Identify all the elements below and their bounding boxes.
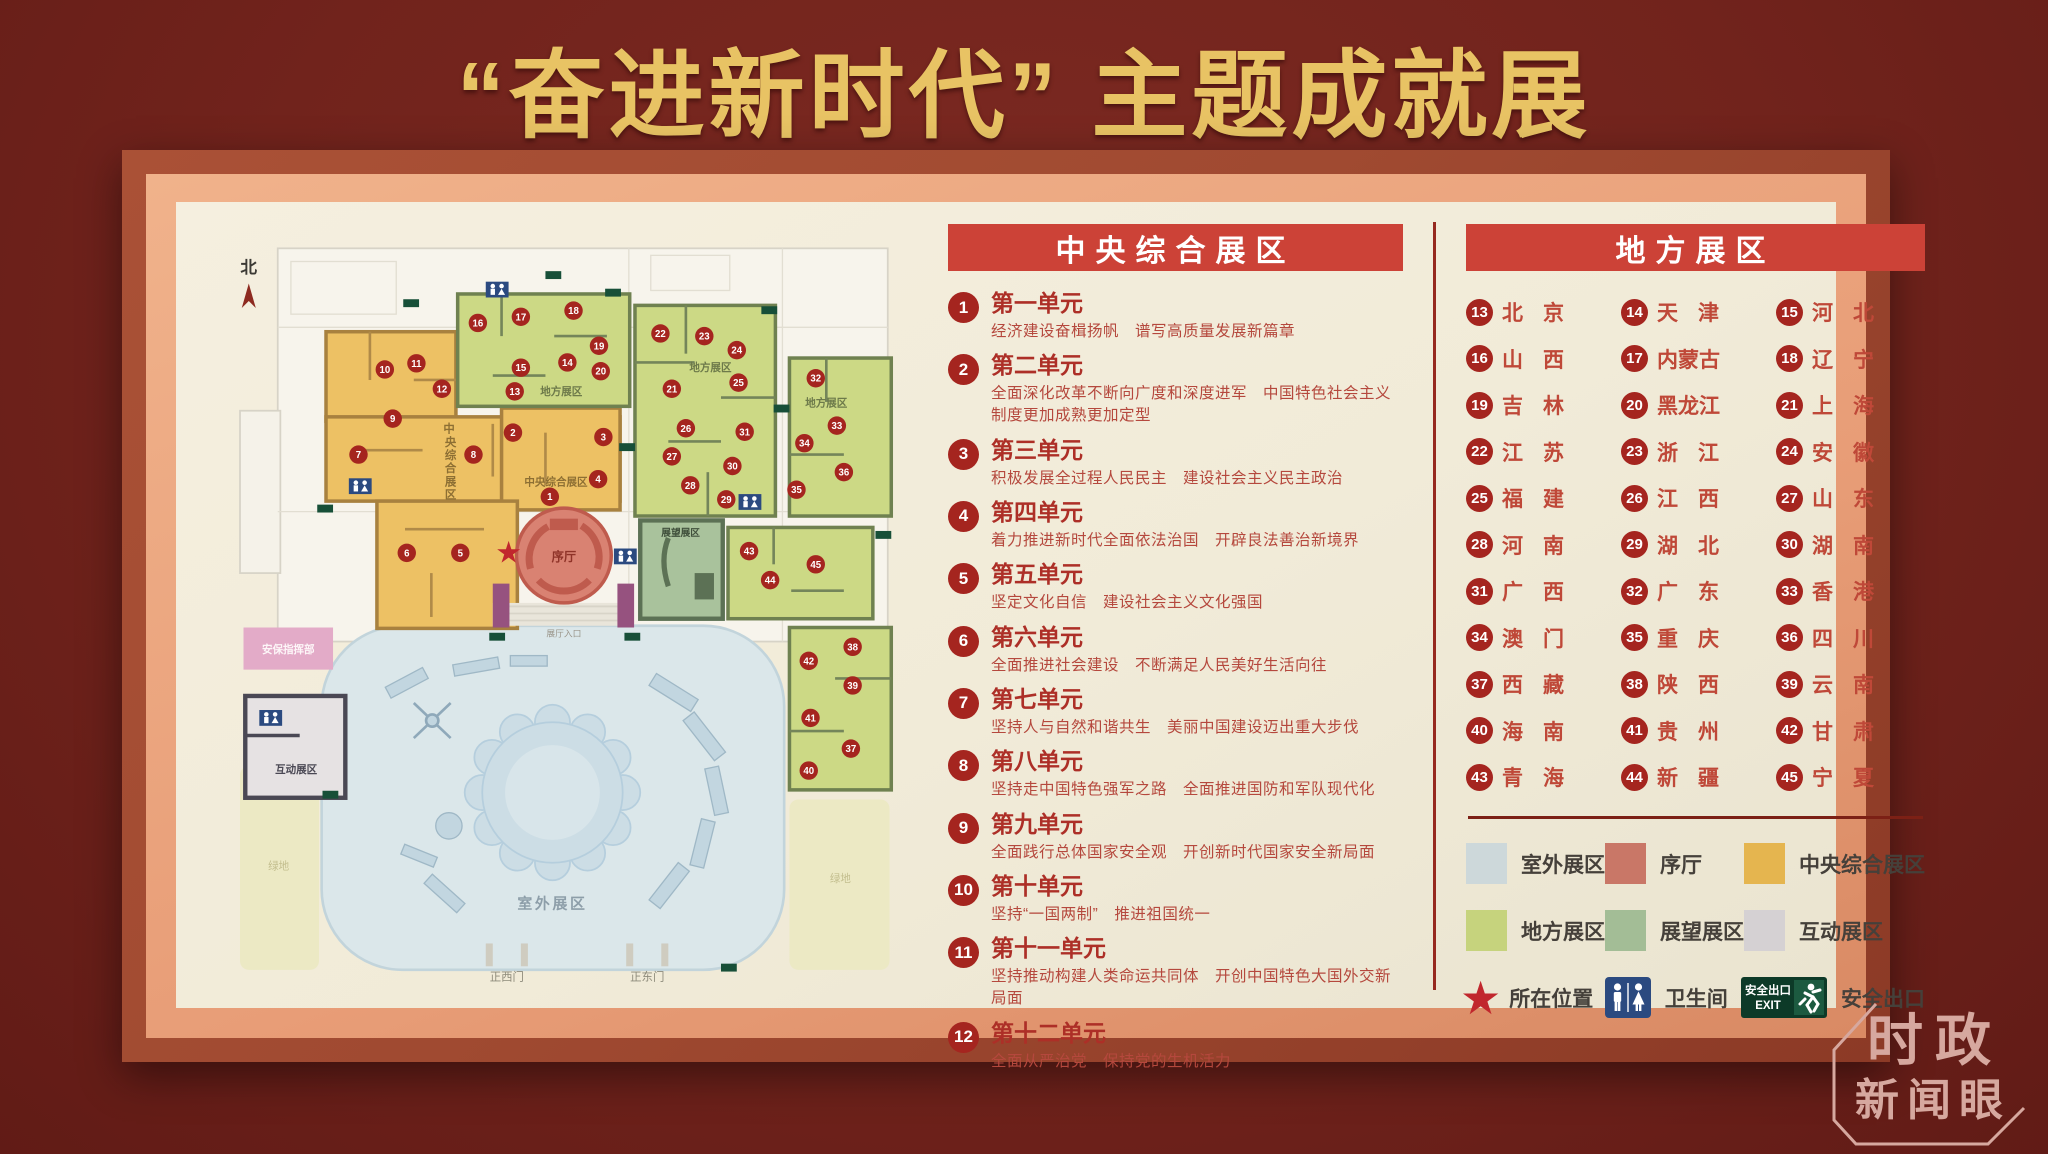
unit-description: 积极发展全过程人民民主 建设社会主义民主政治 xyxy=(991,466,1343,488)
province-number-badge: 29 xyxy=(1621,531,1648,558)
province-name: 重庆 xyxy=(1657,623,1739,653)
unit-description: 全面从严治党 保持党的生机活力 xyxy=(991,1049,1231,1071)
province-name: 甘肃 xyxy=(1812,716,1894,746)
unit-title: 第三单元 xyxy=(991,438,1343,462)
province-name: 浙江 xyxy=(1657,437,1739,467)
svg-text:EXIT: EXIT xyxy=(1755,1000,1781,1012)
unit-description: 着力推进新时代全面依法治国 开辟良法善治新境界 xyxy=(991,528,1359,550)
svg-text:22: 22 xyxy=(655,329,666,340)
province-name: 辽宁 xyxy=(1812,344,1894,374)
watermark-logo: 时政 新闻眼 xyxy=(1816,988,2042,1152)
province-name: 内蒙古 xyxy=(1657,344,1720,374)
north-indicator: 北 xyxy=(240,258,257,308)
unit-number-badge: 4 xyxy=(948,501,979,532)
unit-item: 12 第十二单元 全面从严治党 保持党的生机活力 xyxy=(948,1021,1403,1071)
province-number-badge: 17 xyxy=(1621,345,1648,372)
svg-text:北: 北 xyxy=(240,258,257,277)
svg-text:19: 19 xyxy=(594,341,605,352)
legend-zone-label: 室外展区 xyxy=(1521,849,1605,879)
legend-color-swatch xyxy=(1605,843,1646,884)
province-name: 陕西 xyxy=(1657,669,1739,699)
unit-item: 10 第十单元 坚持“一国两制” 推进祖国统一 xyxy=(948,874,1403,924)
province-item: 45 宁夏 xyxy=(1776,762,1925,792)
svg-text:5: 5 xyxy=(458,548,464,559)
svg-text:安全出口: 安全出口 xyxy=(1745,983,1791,997)
svg-text:安保指挥部: 安保指挥部 xyxy=(262,643,315,656)
svg-text:37: 37 xyxy=(846,744,857,755)
gate-east-label: 正东门 xyxy=(630,969,664,983)
province-item: 43 青海 xyxy=(1466,762,1615,792)
unit-number-badge: 8 xyxy=(948,750,979,781)
board-panel: 北 绿地 绿地 xyxy=(176,202,1836,1008)
province-item: 38 陕西 xyxy=(1621,669,1770,699)
unit-title: 第一单元 xyxy=(991,291,1295,315)
unit-title: 第十单元 xyxy=(991,874,1210,898)
svg-text:15: 15 xyxy=(516,363,527,374)
province-number-badge: 43 xyxy=(1466,764,1493,791)
province-name: 江苏 xyxy=(1502,437,1584,467)
svg-text:43: 43 xyxy=(744,547,755,558)
province-name: 青海 xyxy=(1502,762,1584,792)
province-item: 20 黑龙江 xyxy=(1621,390,1770,420)
unit-number-badge: 1 xyxy=(948,292,979,323)
unit-title: 第六单元 xyxy=(991,625,1327,649)
unit-number-badge: 7 xyxy=(948,688,979,719)
province-item: 19 吉林 xyxy=(1466,390,1615,420)
province-item: 30 湖南 xyxy=(1776,530,1925,560)
svg-text:地方展区: 地方展区 xyxy=(540,385,583,398)
province-item: 42 甘肃 xyxy=(1776,716,1925,746)
svg-text:绿地: 绿地 xyxy=(268,860,290,873)
province-number-badge: 20 xyxy=(1621,392,1648,419)
province-number-badge: 16 xyxy=(1466,345,1493,372)
svg-text:地方展区: 地方展区 xyxy=(689,361,732,374)
province-name: 黑龙江 xyxy=(1657,390,1720,420)
current-location-star-icon: ★ xyxy=(495,537,522,570)
floor-plan-map: 北 绿地 绿地 xyxy=(192,222,934,990)
svg-text:20: 20 xyxy=(595,367,606,378)
unit-title: 第四单元 xyxy=(991,500,1359,524)
board-inner-frame: 北 绿地 绿地 xyxy=(146,174,1866,1038)
province-number-badge: 42 xyxy=(1776,717,1803,744)
province-number-badge: 33 xyxy=(1776,578,1803,605)
legend-location: ★ 所在位置 xyxy=(1466,977,1605,1018)
unit-title: 第九单元 xyxy=(991,812,1375,836)
svg-text:39: 39 xyxy=(847,681,858,692)
province-item: 21 上海 xyxy=(1776,390,1925,420)
svg-text:展望展区: 展望展区 xyxy=(661,527,700,539)
province-item: 28 河南 xyxy=(1466,530,1615,560)
north-arrow-icon xyxy=(242,283,256,308)
province-item: 40 海南 xyxy=(1466,716,1615,746)
province-item: 37 西藏 xyxy=(1466,669,1615,699)
province-name: 吉林 xyxy=(1502,390,1584,420)
unit-number-badge: 9 xyxy=(948,813,979,844)
unit-description: 坚持“一国两制” 推进祖国统一 xyxy=(991,902,1210,924)
unit-item: 8 第八单元 坚持走中国特色强军之路 全面推进国防和军队现代化 xyxy=(948,749,1403,799)
unit-number-badge: 3 xyxy=(948,439,979,470)
province-name: 江西 xyxy=(1657,483,1739,513)
province-number-badge: 35 xyxy=(1621,624,1648,651)
svg-text:40: 40 xyxy=(803,766,814,777)
province-number-badge: 41 xyxy=(1621,717,1648,744)
unit-list: 1 第一单元 经济建设奋楫扬帆 谱写高质量发展新篇章 2 第二单元 全面深化改革… xyxy=(948,291,1403,1071)
unit-description: 经济建设奋楫扬帆 谱写高质量发展新篇章 xyxy=(991,319,1295,341)
gate-west-label: 正西门 xyxy=(490,969,524,983)
province-number-badge: 13 xyxy=(1466,299,1493,326)
svg-text:11: 11 xyxy=(411,359,422,370)
province-name: 河北 xyxy=(1812,297,1894,327)
legend-color-swatch xyxy=(1744,843,1785,884)
province-item: 17 内蒙古 xyxy=(1621,344,1770,374)
province-number-badge: 15 xyxy=(1776,299,1803,326)
svg-text:1: 1 xyxy=(547,492,553,503)
svg-text:室外展区: 室外展区 xyxy=(517,894,587,912)
svg-text:35: 35 xyxy=(791,485,802,496)
legend-zone-item: 中央综合展区 xyxy=(1744,843,1925,884)
outdoor-zone: 室外展区 正西门 正东门 xyxy=(322,626,785,984)
province-item: 36 四川 xyxy=(1776,623,1925,653)
legend-zone-item: 地方展区 xyxy=(1466,910,1605,951)
legend-divider xyxy=(1468,816,1923,819)
province-number-badge: 39 xyxy=(1776,671,1803,698)
svg-text:33: 33 xyxy=(831,421,842,432)
province-item: 18 辽宁 xyxy=(1776,344,1925,374)
security-hq: 安保指挥部 xyxy=(244,628,334,670)
logo-line2: 新闻眼 xyxy=(1816,1064,2042,1128)
province-name: 香港 xyxy=(1812,576,1894,606)
svg-text:地方展区: 地方展区 xyxy=(805,396,848,409)
hall-entrance-label: 展厅入口 xyxy=(546,628,581,638)
svg-text:3: 3 xyxy=(601,433,607,444)
local-zone-header: 地方展区 xyxy=(1466,224,1925,271)
province-item: 25 福建 xyxy=(1466,483,1615,513)
svg-text:2: 2 xyxy=(510,428,515,439)
province-name: 云南 xyxy=(1812,669,1894,699)
svg-text:30: 30 xyxy=(727,462,738,473)
svg-text:7: 7 xyxy=(356,450,361,461)
province-item: 32 广东 xyxy=(1621,576,1770,606)
unit-number-badge: 11 xyxy=(948,937,979,968)
province-name: 贵州 xyxy=(1657,716,1739,746)
svg-text:10: 10 xyxy=(379,365,390,376)
province-number-badge: 36 xyxy=(1776,624,1803,651)
svg-text:25: 25 xyxy=(733,378,744,389)
unit-number-badge: 10 xyxy=(948,875,979,906)
province-item: 34 澳门 xyxy=(1466,623,1615,653)
svg-text:绿地: 绿地 xyxy=(830,872,852,885)
svg-text:序厅: 序厅 xyxy=(552,549,577,564)
province-number-badge: 30 xyxy=(1776,531,1803,558)
province-name: 福建 xyxy=(1502,483,1584,513)
central-zone-column: 中央综合展区 1 第一单元 经济建设奋楫扬帆 谱写高质量发展新篇章 2 第二单元… xyxy=(944,222,1436,990)
svg-text:12: 12 xyxy=(437,384,448,395)
unit-item: 1 第一单元 经济建设奋楫扬帆 谱写高质量发展新篇章 xyxy=(948,291,1403,341)
province-number-badge: 14 xyxy=(1621,299,1648,326)
svg-text:29: 29 xyxy=(721,495,732,506)
province-item: 29 湖北 xyxy=(1621,530,1770,560)
exit-sign-icon: 安全出口 EXIT xyxy=(1741,977,1827,1018)
legend-zone-item: 展望展区 xyxy=(1605,910,1744,951)
legend-zone-label: 互动展区 xyxy=(1799,916,1883,946)
prospect-zone: 展望展区 xyxy=(640,520,723,618)
province-item: 35 重庆 xyxy=(1621,623,1770,653)
unit-number-badge: 6 xyxy=(948,626,979,657)
exhibition-board-photo: “奋进新时代” 主题成就展 xyxy=(0,0,2048,1154)
province-item: 23 浙江 xyxy=(1621,437,1770,467)
legend-zone-label: 序厅 xyxy=(1660,849,1702,879)
unit-number-badge: 5 xyxy=(948,563,979,594)
svg-text:14: 14 xyxy=(562,358,573,369)
svg-text:42: 42 xyxy=(803,656,814,667)
svg-text:4: 4 xyxy=(595,475,601,486)
legend-zone-item: 序厅 xyxy=(1605,843,1744,884)
province-name: 河南 xyxy=(1502,530,1584,560)
province-item: 41 贵州 xyxy=(1621,716,1770,746)
province-name: 北京 xyxy=(1502,297,1584,327)
legend-zone-label: 展望展区 xyxy=(1660,916,1744,946)
province-name: 广东 xyxy=(1657,576,1739,606)
central-main-label: 中央综合展区 xyxy=(524,475,588,488)
province-number-badge: 22 xyxy=(1466,438,1493,465)
unit-description: 全面深化改革不断向广度和深度进军 中国特色社会主义制度更加成熟更加定型 xyxy=(991,381,1403,425)
province-number-badge: 21 xyxy=(1776,392,1803,419)
province-name: 山东 xyxy=(1812,483,1894,513)
svg-text:34: 34 xyxy=(799,439,810,450)
province-item: 24 安徽 xyxy=(1776,437,1925,467)
unit-item: 6 第六单元 全面推进社会建设 不断满足人民美好生活向往 xyxy=(948,625,1403,675)
unit-item: 7 第七单元 坚持人与自然和谐共生 美丽中国建设迈出重大步伐 xyxy=(948,687,1403,737)
province-number-badge: 27 xyxy=(1776,485,1803,512)
unit-title: 第七单元 xyxy=(991,687,1359,711)
unit-title: 第十二单元 xyxy=(991,1021,1231,1045)
unit-description: 全面推进社会建设 不断满足人民美好生活向往 xyxy=(991,653,1327,675)
province-name: 山西 xyxy=(1502,344,1584,374)
province-item: 15 河北 xyxy=(1776,297,1925,327)
province-name: 海南 xyxy=(1502,716,1584,746)
legend-color-swatch xyxy=(1605,910,1646,951)
province-number-badge: 25 xyxy=(1466,485,1493,512)
province-item: 44 新疆 xyxy=(1621,762,1770,792)
svg-text:9: 9 xyxy=(390,414,395,425)
province-number-badge: 23 xyxy=(1621,438,1648,465)
province-number-badge: 37 xyxy=(1466,671,1493,698)
svg-text:44: 44 xyxy=(765,576,776,587)
province-item: 39 云南 xyxy=(1776,669,1925,699)
province-name: 广西 xyxy=(1502,576,1584,606)
svg-text:8: 8 xyxy=(471,450,477,461)
unit-description: 坚定文化自信 建设社会主义文化强国 xyxy=(991,590,1263,612)
svg-text:38: 38 xyxy=(847,642,858,653)
province-name: 天津 xyxy=(1657,297,1739,327)
central-left-label: 中 央综合展区 xyxy=(443,422,458,502)
svg-text:6: 6 xyxy=(404,548,410,559)
legend-color-swatch xyxy=(1466,910,1507,951)
province-item: 26 江西 xyxy=(1621,483,1770,513)
province-number-badge: 24 xyxy=(1776,438,1803,465)
province-list: 13 北京 14 天津 15 河北 16 山西 17 内蒙古 18 辽宁 19 … xyxy=(1466,297,1925,792)
province-item: 14 天津 xyxy=(1621,297,1770,327)
unit-item: 4 第四单元 着力推进新时代全面依法治国 开辟良法善治新境界 xyxy=(948,500,1403,550)
unit-item: 3 第三单元 积极发展全过程人民民主 建设社会主义民主政治 xyxy=(948,438,1403,488)
province-number-badge: 28 xyxy=(1466,531,1493,558)
province-item: 33 香港 xyxy=(1776,576,1925,606)
province-name: 上海 xyxy=(1812,390,1894,420)
unit-number-badge: 2 xyxy=(948,354,979,385)
unit-title: 第八单元 xyxy=(991,749,1375,773)
svg-text:36: 36 xyxy=(839,468,850,479)
svg-text:17: 17 xyxy=(516,312,527,323)
svg-text:28: 28 xyxy=(685,481,696,492)
province-item: 16 山西 xyxy=(1466,344,1615,374)
province-item: 13 北京 xyxy=(1466,297,1615,327)
province-number-badge: 19 xyxy=(1466,392,1493,419)
province-item: 31 广西 xyxy=(1466,576,1615,606)
province-number-badge: 31 xyxy=(1466,578,1493,605)
unit-title: 第十一单元 xyxy=(991,936,1403,960)
svg-text:26: 26 xyxy=(681,424,692,435)
province-name: 湖南 xyxy=(1812,530,1894,560)
svg-text:32: 32 xyxy=(810,374,821,385)
local-zone-d xyxy=(728,527,873,618)
legend-zone-label: 地方展区 xyxy=(1521,916,1605,946)
legend-color-swatch xyxy=(1466,843,1507,884)
svg-text:16: 16 xyxy=(472,318,483,329)
unit-description: 坚持人与自然和谐共生 美丽中国建设迈出重大步伐 xyxy=(991,715,1359,737)
legend-restroom: 卫生间 xyxy=(1605,977,1741,1018)
central-zone-header: 中央综合展区 xyxy=(948,224,1403,271)
unit-description: 全面践行总体国家安全观 开创新时代国家安全新局面 xyxy=(991,840,1375,862)
local-zone-column: 地方展区 13 北京 14 天津 15 河北 16 山西 17 内蒙古 18 辽… xyxy=(1466,222,1925,990)
province-number-badge: 40 xyxy=(1466,717,1493,744)
province-number-badge: 32 xyxy=(1621,578,1648,605)
province-number-badge: 44 xyxy=(1621,764,1648,791)
unit-item: 9 第九单元 全面践行总体国家安全观 开创新时代国家安全新局面 xyxy=(948,812,1403,862)
unit-item: 5 第五单元 坚定文化自信 建设社会主义文化强国 xyxy=(948,562,1403,612)
svg-text:24: 24 xyxy=(731,346,742,357)
svg-text:41: 41 xyxy=(805,713,816,724)
legend-zone-item: 室外展区 xyxy=(1466,843,1605,884)
svg-text:27: 27 xyxy=(666,452,677,463)
svg-text:31: 31 xyxy=(739,427,750,438)
board-frame: 北 绿地 绿地 xyxy=(122,150,1890,1062)
province-name: 四川 xyxy=(1812,623,1894,653)
province-name: 湖北 xyxy=(1657,530,1739,560)
legend-zone-grid: 室外展区 序厅 中央综合展区 地方展区 展望展区 互动展区 xyxy=(1466,843,1925,951)
province-name: 澳门 xyxy=(1502,623,1584,653)
legend-zone-label: 中央综合展区 xyxy=(1799,849,1925,879)
svg-text:18: 18 xyxy=(568,306,579,317)
unit-description: 坚持走中国特色强军之路 全面推进国防和军队现代化 xyxy=(991,777,1375,799)
star-icon: ★ xyxy=(1460,978,1501,1018)
legend-zone-item: 互动展区 xyxy=(1744,910,1925,951)
province-name: 宁夏 xyxy=(1812,762,1894,792)
province-number-badge: 18 xyxy=(1776,345,1803,372)
unit-item: 2 第二单元 全面深化改革不断向广度和深度进军 中国特色社会主义制度更加成熟更加… xyxy=(948,353,1403,425)
province-number-badge: 45 xyxy=(1776,764,1803,791)
province-item: 22 江苏 xyxy=(1466,437,1615,467)
svg-text:23: 23 xyxy=(699,332,710,343)
province-name: 新疆 xyxy=(1657,762,1739,792)
svg-text:21: 21 xyxy=(666,384,677,395)
unit-number-badge: 12 xyxy=(948,1022,979,1053)
unit-item: 11 第十一单元 坚持推动构建人类命运共同体 开创中国特色大国外交新局面 xyxy=(948,936,1403,1008)
svg-text:45: 45 xyxy=(810,560,821,571)
province-name: 安徽 xyxy=(1812,437,1894,467)
province-number-badge: 26 xyxy=(1621,485,1648,512)
province-name: 西藏 xyxy=(1502,669,1584,699)
legend-color-swatch xyxy=(1744,910,1785,951)
svg-text:13: 13 xyxy=(509,387,520,398)
province-number-badge: 34 xyxy=(1466,624,1493,651)
unit-description: 坚持推动构建人类命运共同体 开创中国特色大国外交新局面 xyxy=(991,964,1403,1008)
province-item: 27 山东 xyxy=(1776,483,1925,513)
unit-title: 第二单元 xyxy=(991,353,1403,377)
page-title: “奋进新时代” 主题成就展 xyxy=(0,18,2048,157)
restroom-icon xyxy=(1605,977,1651,1018)
svg-text:互动展区: 互动展区 xyxy=(275,763,318,776)
unit-title: 第五单元 xyxy=(991,562,1263,586)
province-number-badge: 38 xyxy=(1621,671,1648,698)
